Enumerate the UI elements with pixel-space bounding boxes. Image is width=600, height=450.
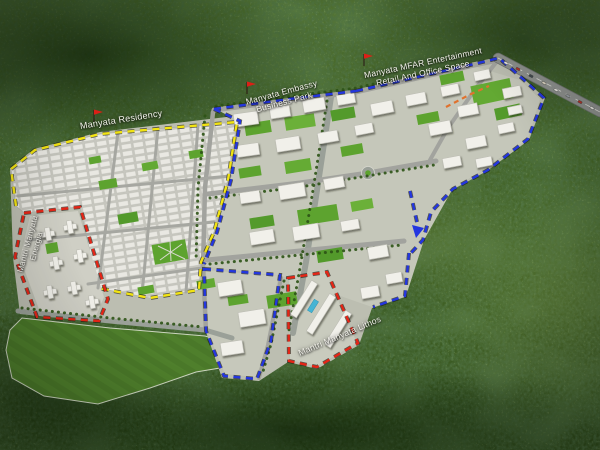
site-plan-canvas [0, 0, 600, 450]
lawn-patch [45, 242, 59, 254]
building [239, 190, 260, 204]
aerial-masterplan-map: Manyata Residency Manyata Embassy Busine… [0, 0, 600, 450]
